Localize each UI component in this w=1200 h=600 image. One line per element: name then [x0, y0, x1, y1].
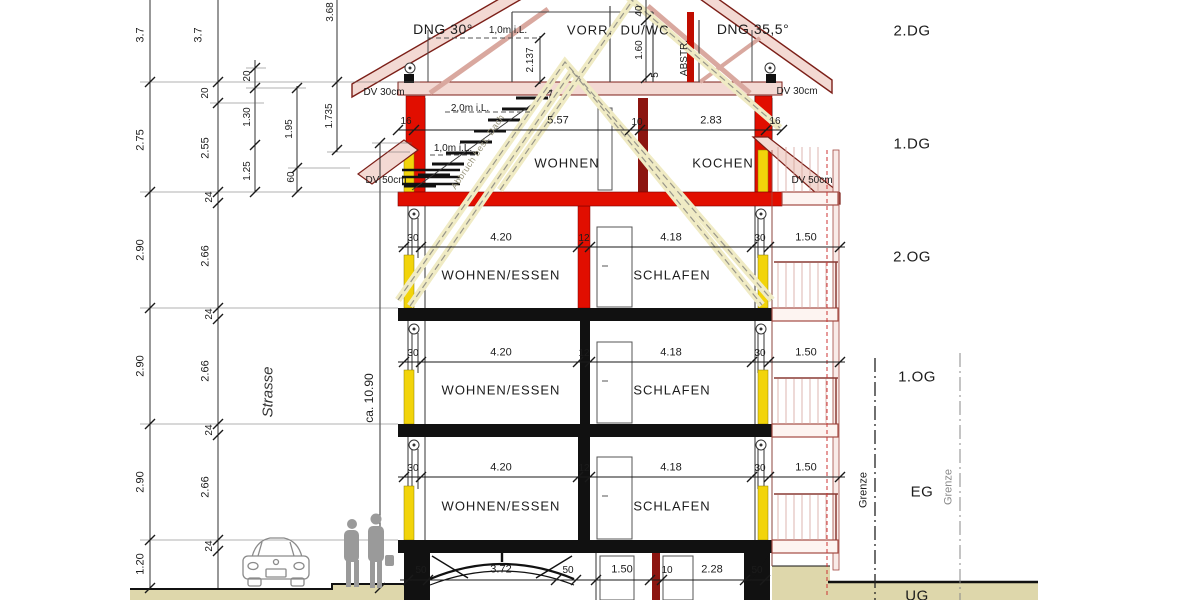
pedestrians-icon — [344, 514, 394, 589]
dim-ug-50b: 50 — [562, 566, 573, 576]
label-grenze-1: Grenze — [859, 472, 870, 508]
dim-eg-418: 4.18 — [660, 463, 681, 474]
label-dv50-left: DV 50cm — [365, 176, 406, 186]
dim-colB-5: 24 — [205, 308, 215, 319]
label-grenze-2: Grenze — [944, 469, 955, 505]
dim-2og-150: 1.50 — [795, 233, 816, 244]
building-structure — [398, 96, 782, 600]
dim-colB-3: 24 — [205, 191, 215, 202]
dim-colA-5: 1.20 — [136, 553, 147, 574]
dim-2og-30l: 30 — [407, 234, 418, 244]
dim-1og-12: 12 — [578, 349, 589, 359]
dim-colC-2: 1.25 — [243, 161, 253, 180]
label-roof-pitch-left: DNG 30° — [413, 22, 473, 36]
dim-attic-40: 40 — [635, 5, 645, 16]
dim-colA-0: 3.7 — [136, 27, 147, 42]
car-icon — [243, 538, 309, 586]
dim-attic-5: 5 — [651, 72, 661, 78]
dim-colB-2: 2.55 — [201, 137, 212, 158]
label-floor-eg: EG — [911, 485, 934, 500]
dim-colA-1: 2.75 — [136, 129, 147, 150]
label-room-schlafen-eg: SCHLAFEN — [633, 500, 710, 513]
label-room-schlafen-1og: SCHLAFEN — [633, 384, 710, 397]
dim-ug-50c: 50 — [751, 566, 762, 576]
dim-colC-1: 1.30 — [243, 107, 253, 126]
label-room-duwc: DU/WC — [620, 24, 669, 37]
label-dv30-right: DV 30cm — [776, 87, 817, 97]
dim-attic-height: 2.137 — [526, 47, 536, 72]
dim-1og-30l: 30 — [407, 349, 418, 359]
label-roof-pitch-right: DNG 35,5° — [717, 22, 789, 36]
dim-1dg-2m: 2,0m i.L. — [451, 104, 489, 114]
dim-colB-4: 2.66 — [201, 245, 212, 266]
dim-eg-12: 12 — [578, 464, 589, 474]
dim-1dg-557: 5.57 — [547, 116, 568, 127]
label-room-vorr: VORR. — [567, 24, 613, 37]
basement — [404, 551, 770, 600]
label-floor-2og: 2.OG — [893, 250, 931, 265]
label-room-wohnen-essen-eg: WOHNEN/ESSEN — [442, 500, 561, 513]
dim-colB-8: 2.66 — [201, 476, 212, 497]
dim-colE-0: 3.68 — [326, 2, 336, 21]
dim-colB-6: 2.66 — [201, 360, 212, 381]
label-dv50-right: DV 50cm — [791, 176, 832, 186]
dim-ug-150: 1.50 — [611, 565, 632, 576]
dim-colB-1: 20 — [201, 87, 211, 98]
dim-2og-30r: 30 — [754, 234, 765, 244]
label-floor-1og: 1.OG — [898, 370, 936, 385]
dim-colC-0: 20 — [243, 70, 253, 81]
dim-ug-228: 2.28 — [701, 565, 722, 576]
dim-colB-0: 3.7 — [194, 27, 205, 42]
dim-1dg-10: 10 — [631, 118, 642, 128]
dim-colA-2: 2.90 — [136, 239, 147, 260]
dim-1dg-16-right: 16 — [769, 117, 780, 127]
new-slab-1dg — [398, 192, 782, 206]
dim-colE-1: 1.735 — [325, 103, 335, 128]
dim-1og-150: 1.50 — [795, 348, 816, 359]
dim-1dg-283: 2.83 — [700, 116, 721, 127]
dim-attic-160: 1.60 — [635, 40, 645, 59]
dim-eg-30r: 30 — [754, 464, 765, 474]
label-floor-1dg: 1.DG — [893, 137, 930, 152]
dim-2og-12: 12 — [578, 234, 589, 244]
label-building-height: ca. 10.90 — [363, 373, 375, 422]
dim-2og-420: 4.20 — [490, 233, 511, 244]
label-floor-2dg: 2.DG — [893, 24, 930, 39]
dim-colA-4: 2.90 — [136, 471, 147, 492]
section-geometry — [0, 0, 1200, 600]
label-room-wohnen: WOHNEN — [534, 157, 599, 170]
building-section-drawing: DNG 30° VORR. DU/WC DNG 35,5° 1,0m i.L. … — [0, 0, 1200, 600]
dim-1og-30r: 30 — [754, 349, 765, 359]
label-room-wohnen-essen-1og: WOHNEN/ESSEN — [442, 384, 561, 397]
dim-2og-418: 4.18 — [660, 233, 681, 244]
dim-colB-9: 24 — [205, 540, 215, 551]
dim-1dg-16-left: 16 — [400, 117, 411, 127]
dim-attic-clearance: 1,0m i.L. — [489, 26, 527, 36]
label-floor-ug: UG — [905, 589, 929, 600]
dim-1og-420: 4.20 — [490, 348, 511, 359]
dim-colD-0: 1.95 — [285, 119, 295, 138]
dim-1og-418: 4.18 — [660, 348, 681, 359]
dim-eg-420: 4.20 — [490, 463, 511, 474]
label-dv30-left: DV 30cm — [363, 88, 404, 98]
label-room-wohnen-essen-2og: WOHNEN/ESSEN — [442, 269, 561, 282]
dim-ug-372: 3.72 — [490, 565, 511, 576]
label-strasse: Strasse — [261, 367, 276, 418]
dim-eg-150: 1.50 — [795, 463, 816, 474]
label-room-kochen: KOCHEN — [692, 157, 754, 170]
dim-1dg-1m: 1,0m i.L. — [434, 144, 472, 154]
dim-ug-50a: 50 — [415, 566, 426, 576]
dim-ug-10: 10 — [661, 566, 672, 576]
label-room-abstr: ABSTR. — [680, 40, 690, 76]
dim-eg-30l: 30 — [407, 464, 418, 474]
dim-colA-3: 2.90 — [136, 355, 147, 376]
balconies — [772, 147, 839, 597]
dim-colB-7: 24 — [205, 424, 215, 435]
label-room-schlafen-2og: SCHLAFEN — [633, 269, 710, 282]
dim-colD-1: 60 — [287, 171, 297, 182]
